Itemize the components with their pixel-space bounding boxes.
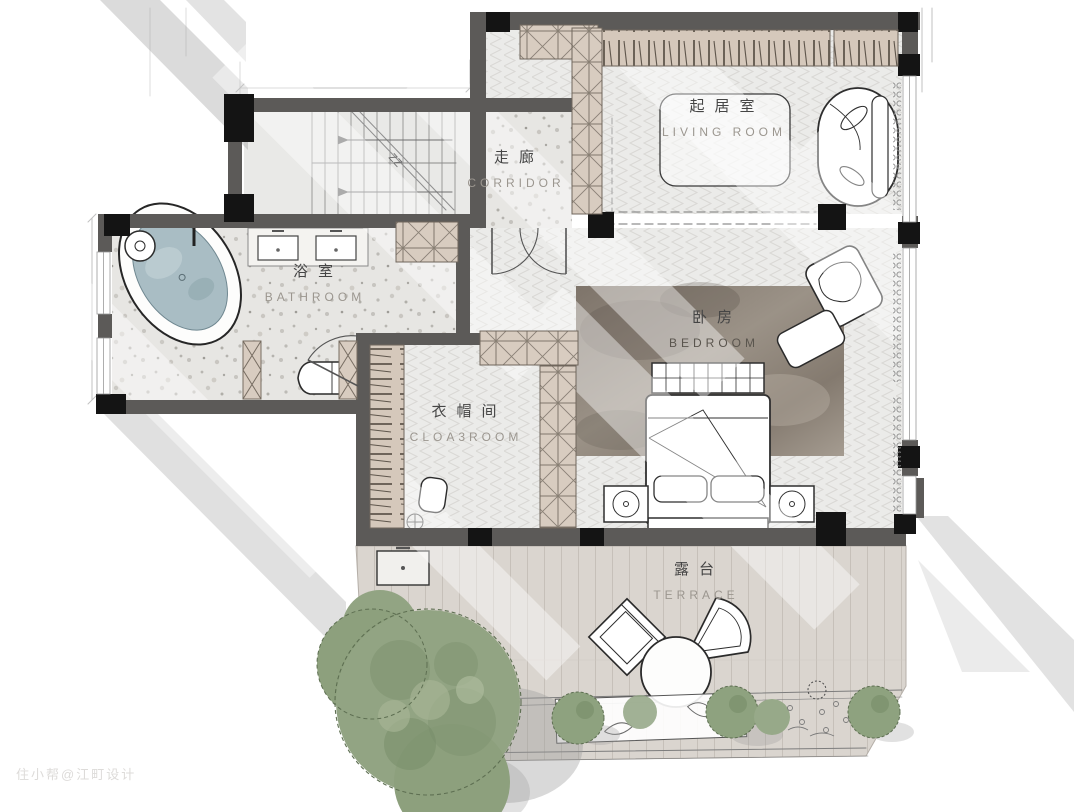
sink xyxy=(316,236,356,260)
toilet xyxy=(298,362,340,394)
vanity xyxy=(248,228,368,266)
watermark: 住小帮@江町设计 xyxy=(16,764,136,783)
niche-cabinet-left xyxy=(243,341,261,399)
floor-plan: ZZ xyxy=(0,0,1074,812)
floor-plan-drawing: ZZ xyxy=(0,0,1074,812)
wardrobe-top xyxy=(598,30,830,66)
sink xyxy=(258,236,298,260)
cloak-wardrobe xyxy=(370,345,404,528)
cabinet-x xyxy=(480,331,578,365)
curtain xyxy=(893,252,901,382)
cabinet-x xyxy=(396,222,458,262)
niche-cabinet-right xyxy=(339,341,357,399)
cabinet-column xyxy=(572,28,602,214)
curtain xyxy=(893,80,901,210)
curtain xyxy=(893,396,901,512)
nightstand-left xyxy=(604,486,648,522)
cabinet-column xyxy=(540,366,576,528)
wardrobe-top xyxy=(834,30,898,66)
